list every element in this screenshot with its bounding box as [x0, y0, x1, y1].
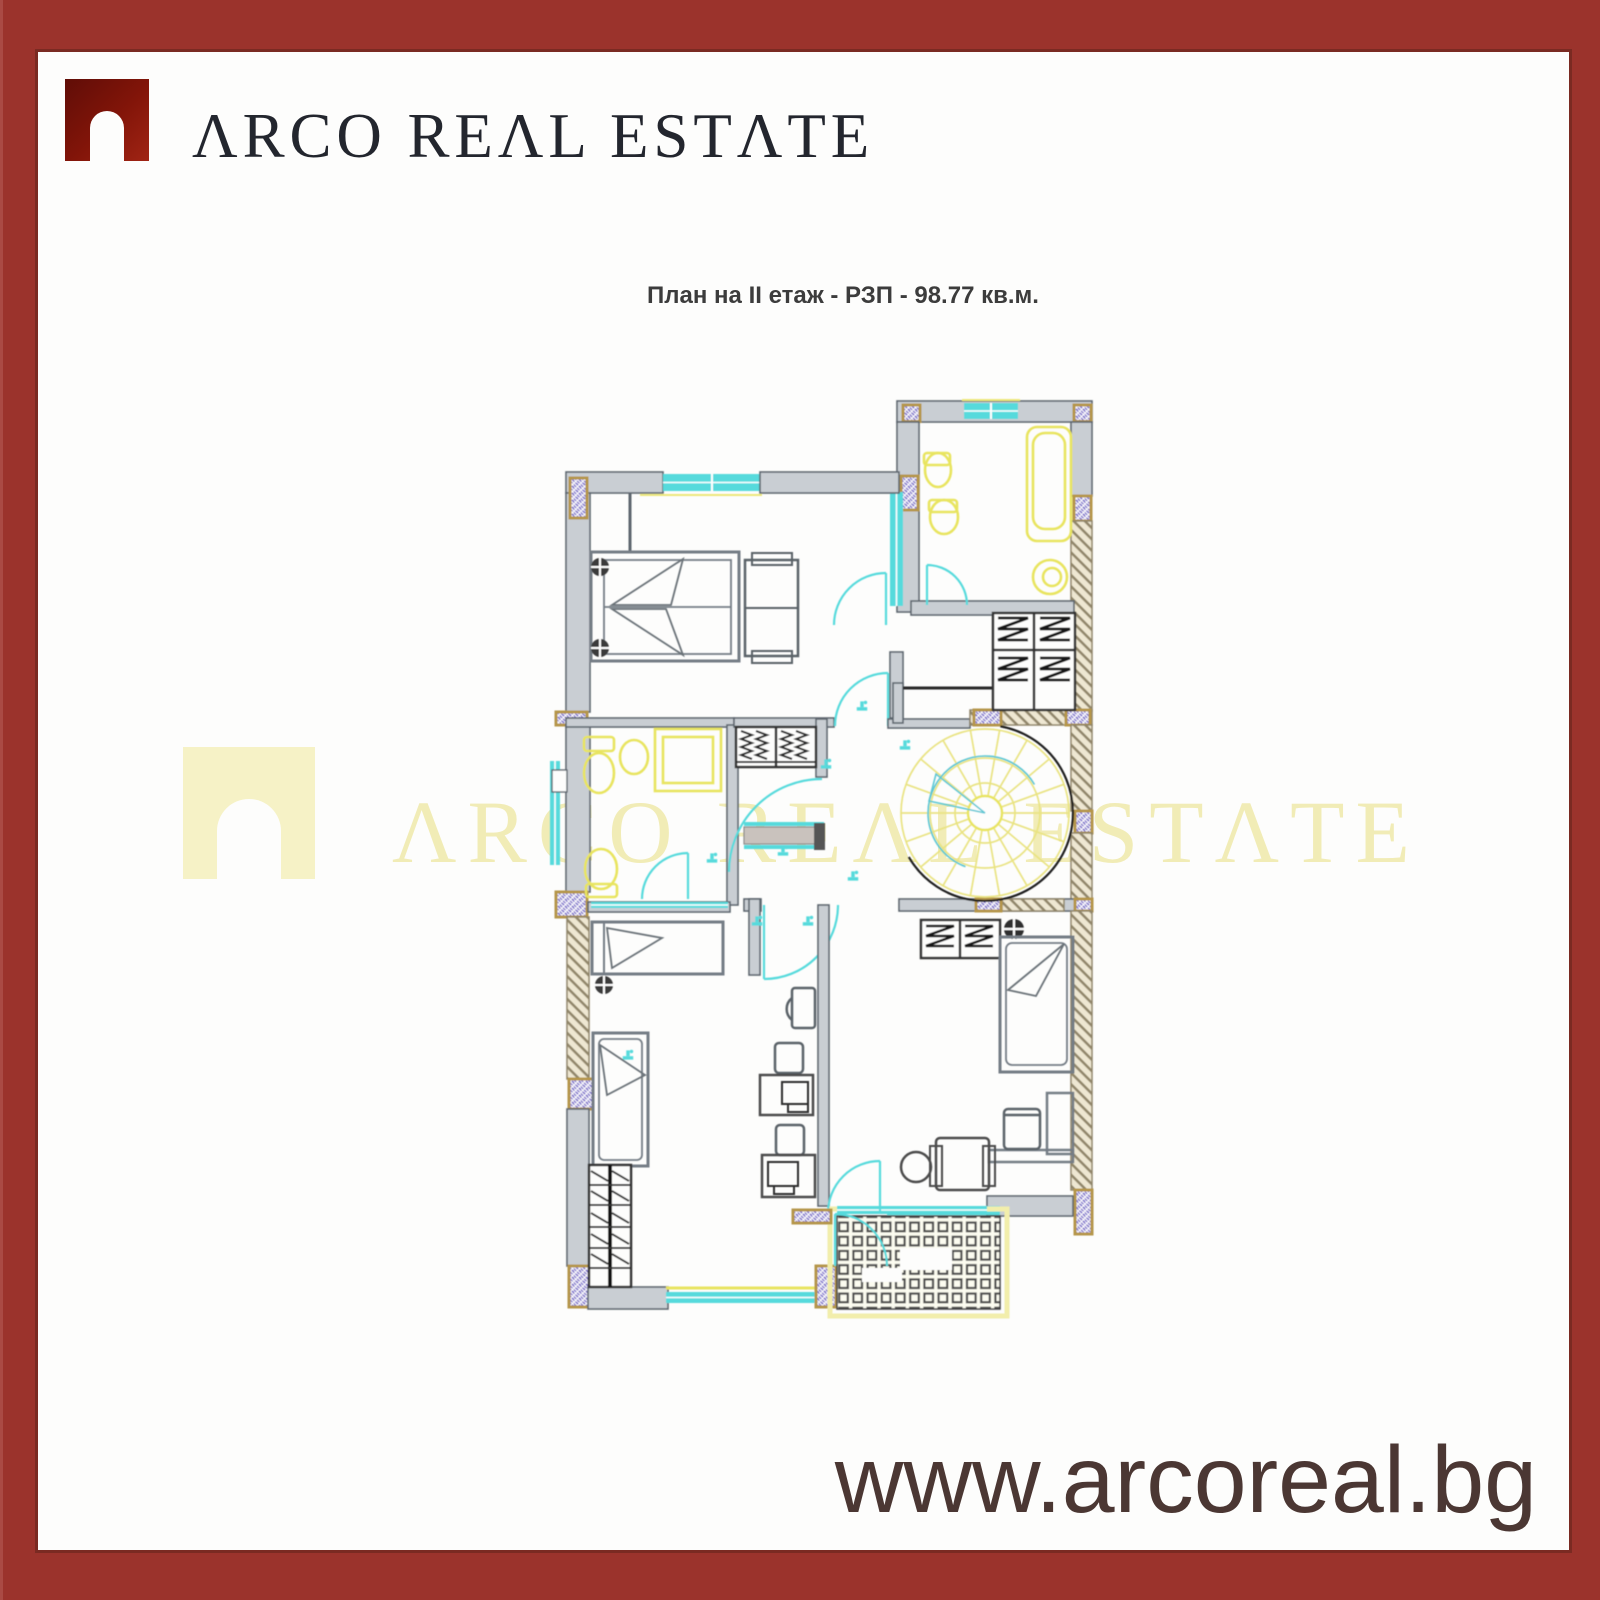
- svg-text:ΛRCO REΛL ESTΛTE: ΛRCO REΛL ESTΛTE: [392, 784, 1421, 882]
- svg-text:www.arcoreal.bg: www.arcoreal.bg: [834, 1427, 1537, 1533]
- svg-text:ΛRCO REΛL ESTΛTE: ΛRCO REΛL ESTΛTE: [192, 101, 874, 171]
- svg-text:План на II етаж - РЗП - 98.77: План на II етаж - РЗП - 98.77 кв.м.: [647, 282, 1039, 309]
